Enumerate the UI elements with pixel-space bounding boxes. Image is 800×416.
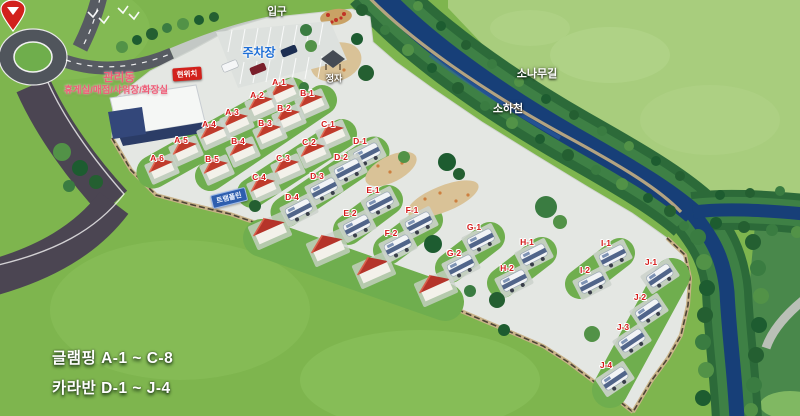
tree-icon <box>675 171 685 181</box>
tree-icon <box>624 141 634 151</box>
tree-icon <box>427 63 437 73</box>
tree-icon <box>413 1 423 11</box>
tree-icon <box>146 28 158 40</box>
tree-icon <box>436 21 446 31</box>
tree-icon <box>535 196 557 218</box>
tree-icon <box>132 35 142 45</box>
tree-icon <box>358 65 374 81</box>
tree-icon <box>53 143 71 161</box>
tree-icon <box>775 186 785 196</box>
tree-icon <box>89 175 103 189</box>
tree-icon <box>696 254 712 270</box>
tree-icon <box>453 168 465 180</box>
tree-icon <box>506 117 518 129</box>
tree-icon <box>116 41 128 53</box>
tree-icon <box>464 285 476 297</box>
tree-icon <box>698 362 714 378</box>
tree-icon <box>664 205 676 217</box>
tree-icon <box>177 18 189 30</box>
tree-icon <box>745 188 755 198</box>
tree-icon <box>72 160 88 176</box>
tree-icon <box>487 59 497 69</box>
tree-icon <box>424 235 442 253</box>
tree-icon <box>351 33 363 45</box>
legend-caravan: 카라반 D-1 ~ J-4 <box>52 376 173 398</box>
tree-icon <box>398 151 410 163</box>
tree-icon <box>695 390 711 406</box>
tree-icon <box>452 82 464 94</box>
tree-icon <box>690 229 706 245</box>
tree-icon <box>695 334 711 350</box>
tree-icon <box>162 23 172 33</box>
tree-icon <box>584 326 600 342</box>
tree-icon <box>249 200 261 212</box>
tree-icon <box>553 215 567 229</box>
campground-map: 입구 주차장 정자 관리동 휴게실/매점/샤워장/화장실 트램폴린 소나무길 소… <box>0 0 800 416</box>
tree-icon <box>679 221 689 231</box>
tree-icon <box>766 224 778 236</box>
tree-icon <box>299 82 309 92</box>
tree-icon <box>489 292 505 308</box>
tree-icon <box>63 180 75 192</box>
tree-icon <box>616 178 628 190</box>
tree-icon <box>380 25 390 35</box>
tree-icon <box>402 44 414 56</box>
tree-icon <box>562 149 574 161</box>
map-legend: 글램핑 A-1 ~ C-8 카라반 D-1 ~ J-4 <box>52 346 173 406</box>
tree-icon <box>745 234 761 250</box>
tree-icon <box>209 12 219 22</box>
tree-icon <box>751 317 767 333</box>
tree-icon <box>438 153 456 171</box>
tree-icon <box>305 40 317 52</box>
tree-icon <box>461 40 471 50</box>
tree-icon <box>480 101 490 111</box>
tree-icon <box>591 165 601 175</box>
legend-glamping: 글램핑 A-1 ~ C-8 <box>52 346 173 368</box>
tree-icon <box>753 288 769 304</box>
tree-icon <box>651 156 661 166</box>
tree-icon <box>300 24 312 36</box>
tree-icon <box>569 110 579 120</box>
tree-icon <box>514 77 524 87</box>
tree-icon <box>541 94 551 104</box>
tree-icon <box>750 260 766 276</box>
tree-icon <box>498 324 510 336</box>
tree-icon <box>597 126 607 136</box>
tree-icon <box>194 15 204 25</box>
tree-icon <box>710 217 722 229</box>
tree-icon <box>738 221 750 233</box>
tree-icon <box>746 377 762 393</box>
tree-icon <box>356 4 368 16</box>
current-location-pin-icon <box>0 0 26 32</box>
tree-icon <box>715 190 725 200</box>
tree-icon <box>748 347 764 363</box>
tree-icon <box>697 307 713 323</box>
tree-icon <box>643 193 653 203</box>
tree-icon <box>699 280 715 296</box>
tree-icon <box>535 134 545 144</box>
